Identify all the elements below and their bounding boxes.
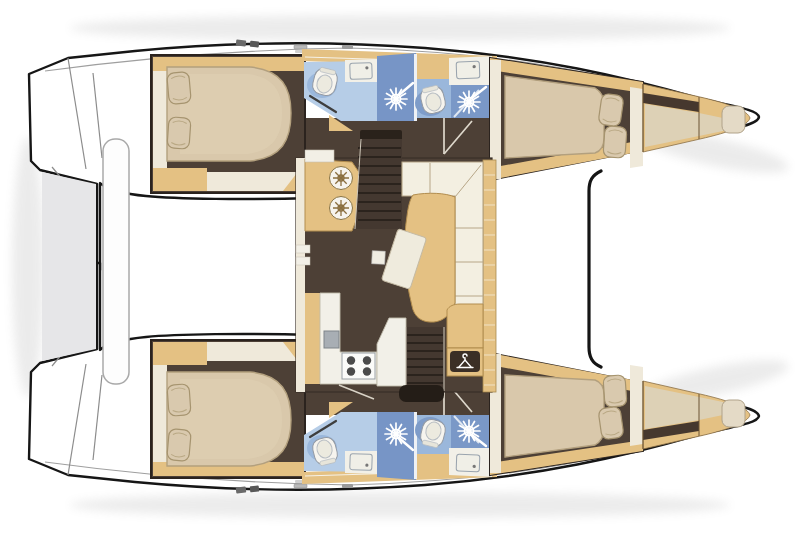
stair-landing (399, 385, 444, 402)
saloon-aft-wall (296, 158, 305, 392)
aft-cabin (151, 55, 305, 193)
stove-icon (342, 353, 375, 379)
forward-bathroom (415, 54, 492, 118)
galley-shelf (305, 150, 334, 162)
table-post (372, 251, 386, 265)
wall-shelf (296, 257, 310, 265)
forepeak-pillow (722, 106, 745, 133)
bathroom-divider-wall (414, 54, 417, 121)
aft-bench (447, 304, 483, 348)
bathroom-cabinet (417, 54, 449, 79)
saloon (296, 130, 496, 402)
bed-highlight (180, 74, 282, 154)
wall-shelf (296, 245, 310, 253)
galley-appliance (324, 331, 339, 348)
stern-platform-bar (103, 139, 129, 384)
stairs-port (355, 130, 402, 229)
forward-cabin (490, 58, 643, 180)
wardrobe (447, 348, 483, 376)
floorplan-svg (0, 0, 800, 533)
stairs-starboard (406, 327, 444, 391)
double-berth (505, 76, 604, 158)
forepeak-bulkhead (630, 87, 643, 168)
forward-step-trim (483, 160, 496, 392)
stern-gap-shading (42, 172, 96, 361)
trampoline-beam (589, 171, 601, 367)
catamaran-floorplan (0, 0, 800, 533)
